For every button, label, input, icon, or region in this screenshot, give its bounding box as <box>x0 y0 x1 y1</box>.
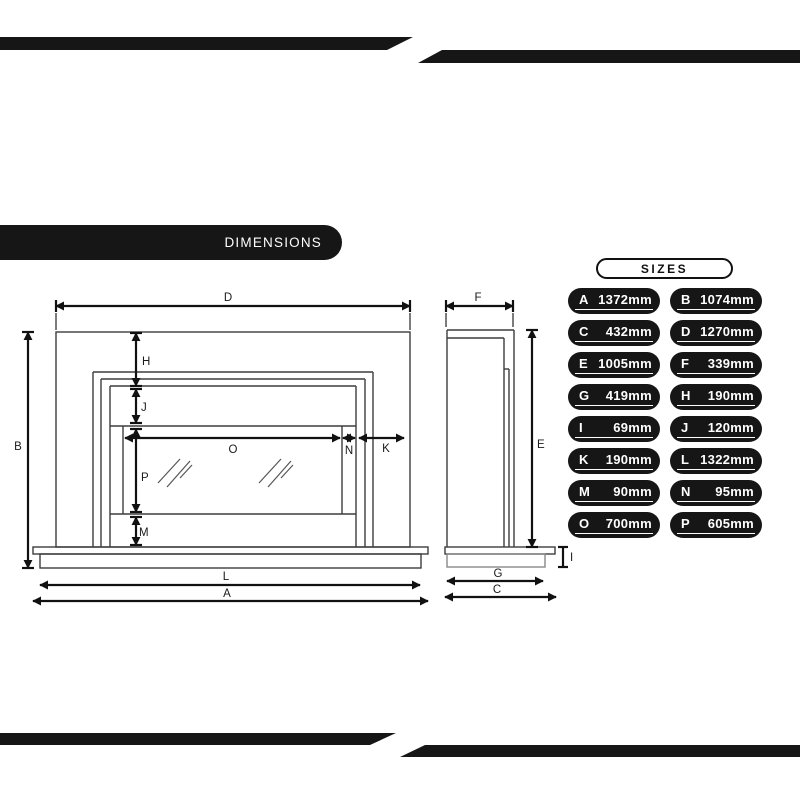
dim-label-f: F <box>474 292 481 304</box>
dim-label-h: H <box>142 356 150 368</box>
sizes-title-label: SIZES <box>641 262 688 276</box>
size-pill-i: I69mm <box>568 416 660 442</box>
size-value: 1322mm <box>700 452 754 467</box>
dim-label-b: B <box>14 441 22 453</box>
size-letter: K <box>579 452 589 467</box>
size-pill-g: G419mm <box>568 384 660 410</box>
dim-label-m: M <box>139 527 149 539</box>
dim-label-k: K <box>382 443 390 455</box>
dim-label-d: D <box>224 292 232 304</box>
sizes-table: A1372mm B1074mm C432mm D1270mm E1005mm F… <box>568 288 762 538</box>
size-pill-a: A1372mm <box>568 288 660 314</box>
size-value: 120mm <box>708 420 754 435</box>
size-letter: N <box>681 484 691 499</box>
size-pill-l: L1322mm <box>670 448 762 474</box>
size-pill-k: K190mm <box>568 448 660 474</box>
dimensions-badge: DIMENSIONS <box>0 225 342 260</box>
dim-label-c: C <box>493 584 501 596</box>
size-value: 700mm <box>606 516 652 531</box>
size-pill-n: N95mm <box>670 480 762 506</box>
size-pill-e: E1005mm <box>568 352 660 378</box>
size-value: 95mm <box>715 484 754 499</box>
size-pill-o: O700mm <box>568 512 660 538</box>
size-value: 190mm <box>708 388 754 403</box>
size-letter: E <box>579 356 588 371</box>
dimension-lines <box>22 300 568 601</box>
size-value: 432mm <box>606 324 652 339</box>
size-value: 1074mm <box>700 292 754 307</box>
size-letter: H <box>681 388 691 403</box>
sizes-table-title: SIZES <box>596 258 733 279</box>
dim-label-j: J <box>141 402 147 414</box>
glass-hatch-marks <box>158 459 293 487</box>
size-letter: D <box>681 324 691 339</box>
dim-label-a: A <box>223 588 231 600</box>
size-pill-m: M90mm <box>568 480 660 506</box>
size-value: 339mm <box>708 356 754 371</box>
size-letter: P <box>681 516 690 531</box>
size-value: 190mm <box>606 452 652 467</box>
size-letter: O <box>579 516 589 531</box>
size-value: 1005mm <box>598 356 652 371</box>
size-letter: I <box>579 420 583 435</box>
size-pill-b: B1074mm <box>670 288 762 314</box>
size-value: 1372mm <box>598 292 652 307</box>
size-letter: M <box>579 484 590 499</box>
dim-label-i: I <box>570 552 573 564</box>
size-pill-h: H190mm <box>670 384 762 410</box>
size-letter: C <box>579 324 589 339</box>
size-value: 419mm <box>606 388 652 403</box>
top-divider-bars <box>0 37 800 63</box>
size-pill-c: C432mm <box>568 320 660 346</box>
size-letter: G <box>579 388 589 403</box>
dim-label-e: E <box>537 439 545 451</box>
size-letter: F <box>681 356 689 371</box>
dim-label-n: N <box>345 445 353 457</box>
size-value: 90mm <box>613 484 652 499</box>
size-pill-p: P605mm <box>670 512 762 538</box>
size-letter: L <box>681 452 689 467</box>
size-value: 605mm <box>708 516 754 531</box>
dim-label-l: L <box>223 571 230 583</box>
size-letter: B <box>681 292 691 307</box>
bottom-divider-bars <box>0 733 800 757</box>
dim-label-o: O <box>229 444 238 456</box>
dimensions-badge-label: DIMENSIONS <box>224 235 322 250</box>
dim-label-p: P <box>141 472 149 484</box>
size-value: 1270mm <box>700 324 754 339</box>
product-dimensions-page: D F B E H J P M O N K L A G C I DIMENSIO… <box>0 0 800 800</box>
size-letter: J <box>681 420 689 435</box>
size-pill-f: F339mm <box>670 352 762 378</box>
size-value: 69mm <box>613 420 652 435</box>
size-pill-d: D1270mm <box>670 320 762 346</box>
size-letter: A <box>579 292 589 307</box>
size-pill-j: J120mm <box>670 416 762 442</box>
dim-label-g: G <box>494 568 503 580</box>
